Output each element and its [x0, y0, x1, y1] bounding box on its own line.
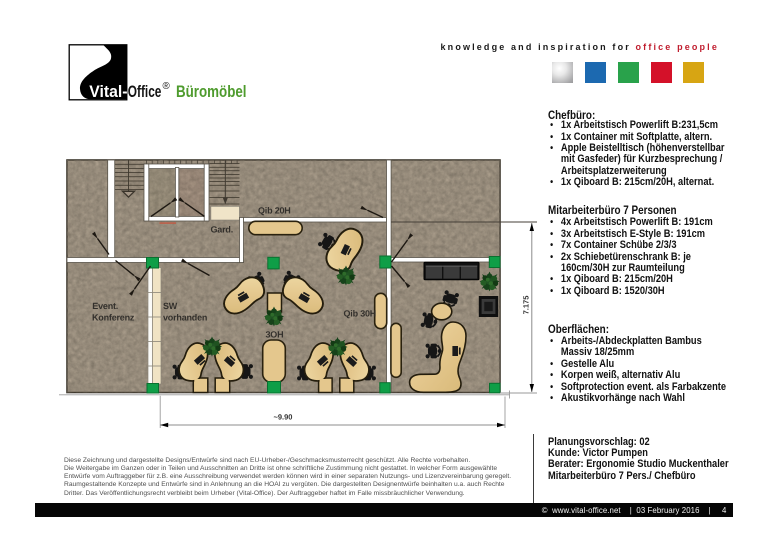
svg-text:Konferenz: Konferenz [92, 313, 135, 323]
svg-text:7.175: 7.175 [522, 296, 531, 315]
svg-text:Qib 30H: Qib 30H [344, 309, 377, 319]
svg-text:vorhanden: vorhanden [163, 313, 207, 323]
svg-text:3OH: 3OH [266, 330, 284, 340]
svg-text:~9.90: ~9.90 [274, 413, 293, 422]
svg-text:Qib 20H: Qib 20H [258, 206, 291, 216]
svg-text:Event.: Event. [92, 301, 118, 311]
svg-text:Gard.: Gard. [211, 225, 234, 235]
svg-text:SW: SW [163, 301, 178, 311]
